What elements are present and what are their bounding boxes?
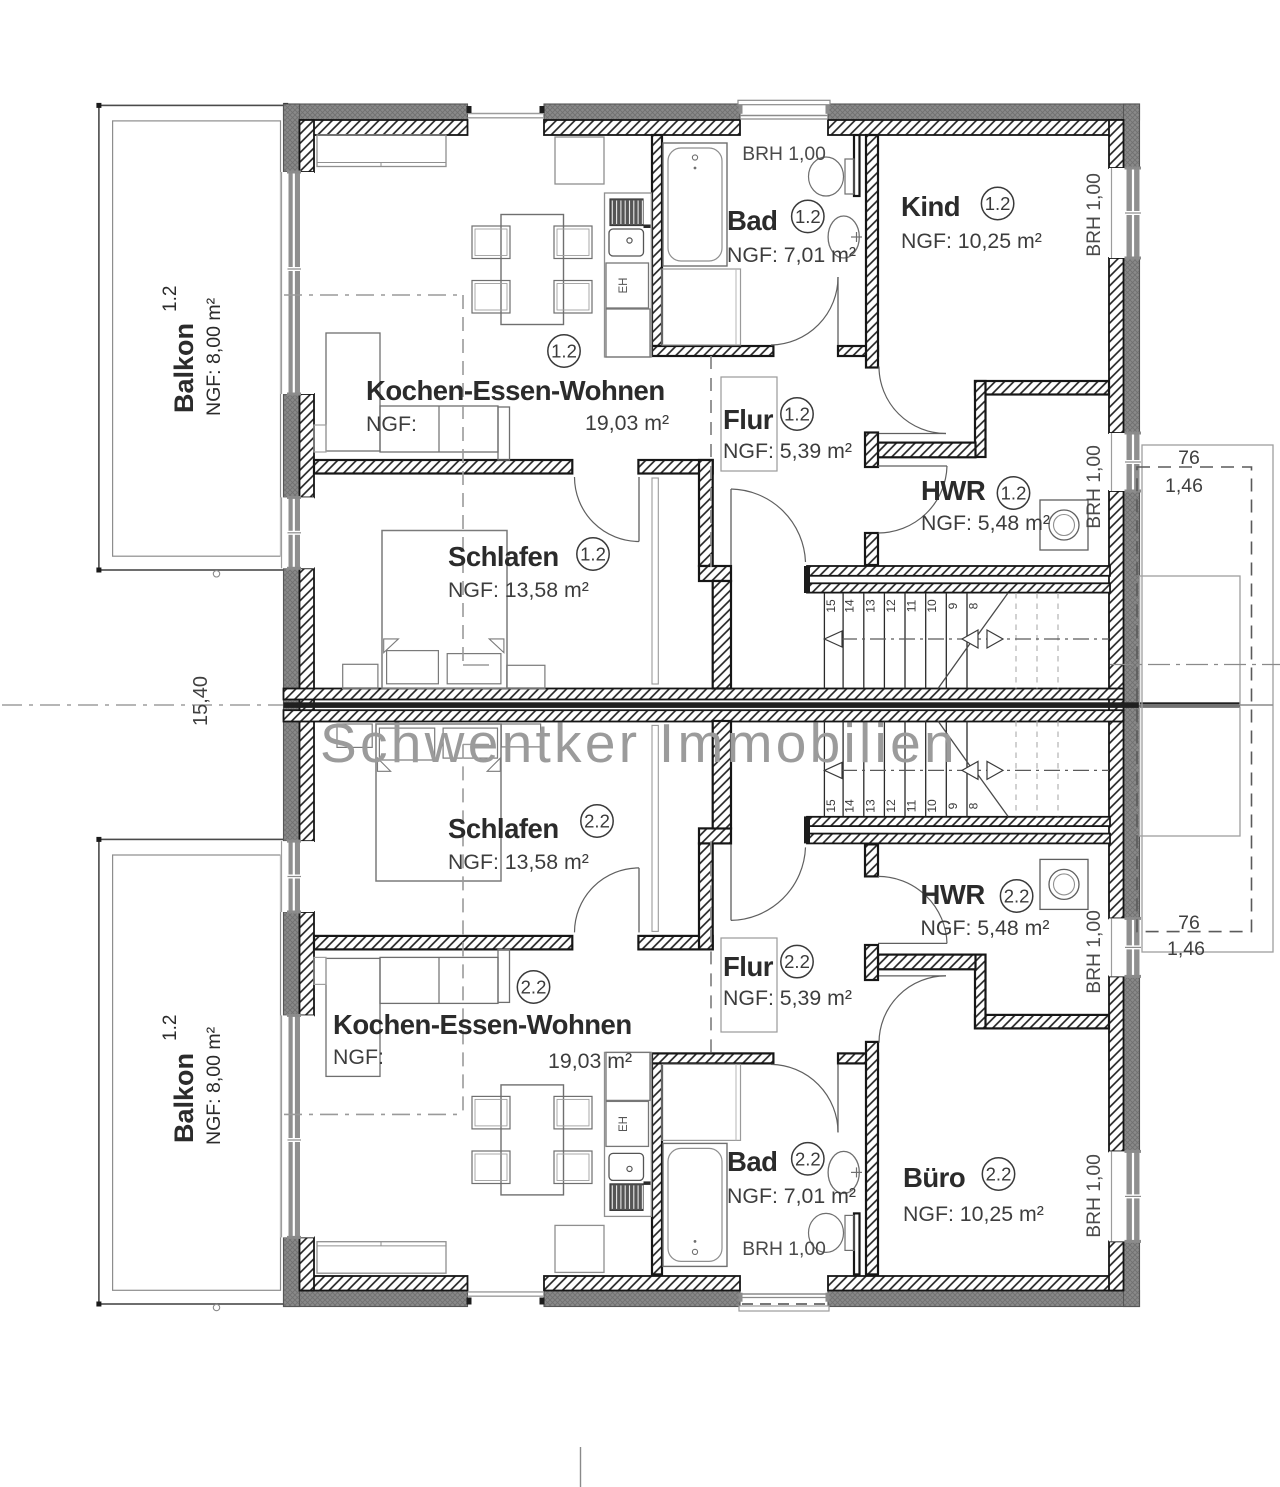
svg-text:BRH 1,00: BRH 1,00 [1084,910,1105,994]
svg-text:BRH 1,00: BRH 1,00 [742,144,826,165]
svg-text:Kind: Kind [901,191,960,222]
svg-text:2.2: 2.2 [584,811,610,832]
svg-text:13: 13 [863,799,877,813]
svg-text:1.2: 1.2 [985,193,1011,214]
svg-text:1.2: 1.2 [160,286,181,312]
svg-text:9: 9 [946,602,960,609]
svg-text:BRH 1,00: BRH 1,00 [1084,445,1105,529]
svg-text:14: 14 [843,799,857,813]
svg-text:NGF: 7,01 m²: NGF: 7,01 m² [727,243,856,267]
svg-text:8: 8 [967,602,981,609]
svg-text:11: 11 [905,599,919,612]
svg-text:1.2: 1.2 [784,404,810,425]
svg-text:8: 8 [967,802,981,809]
svg-text:Schwentker Immobilien: Schwentker Immobilien [320,712,958,774]
svg-text:12: 12 [884,599,898,613]
svg-text:15,40: 15,40 [190,676,212,726]
svg-text:19,03 m²: 19,03 m² [548,1049,632,1073]
svg-text:BRH 1,00: BRH 1,00 [1084,173,1105,257]
svg-text:76: 76 [1178,447,1200,469]
svg-text:NGF: 13,58 m²: NGF: 13,58 m² [448,578,589,602]
svg-text:Bad: Bad [727,1146,777,1177]
svg-text:10: 10 [925,599,939,613]
svg-text:Büro: Büro [903,1162,965,1193]
svg-text:BRH 1,00: BRH 1,00 [1084,1154,1105,1238]
svg-text:10: 10 [925,799,939,813]
svg-text:15: 15 [824,799,838,813]
svg-text:Balkon: Balkon [169,323,199,413]
svg-text:Kochen-Essen-Wohnen: Kochen-Essen-Wohnen [366,375,665,406]
svg-text:1.2: 1.2 [1001,483,1027,504]
svg-text:EH: EH [618,1116,630,1132]
svg-text:Schlafen: Schlafen [448,813,559,844]
svg-text:HWR: HWR [921,475,986,506]
svg-text:1.2: 1.2 [551,341,577,362]
svg-text:NGF: 10,25 m²: NGF: 10,25 m² [901,229,1042,253]
svg-text:Kochen-Essen-Wohnen: Kochen-Essen-Wohnen [333,1009,632,1040]
svg-text:NGF: 13,58 m²: NGF: 13,58 m² [448,850,589,874]
svg-text:19,03 m²: 19,03 m² [585,411,669,435]
svg-text:9: 9 [946,802,960,809]
svg-text:NGF:: NGF: [333,1045,384,1069]
svg-text:NGF: 8,00 m²: NGF: 8,00 m² [203,297,225,416]
svg-text:14: 14 [843,599,857,613]
svg-text:NGF: 5,48 m²: NGF: 5,48 m² [921,916,1050,940]
svg-text:15: 15 [824,599,838,613]
svg-text:EH: EH [618,278,630,294]
svg-text:Balkon: Balkon [169,1053,199,1143]
svg-text:1,46: 1,46 [1165,475,1203,497]
svg-text:13: 13 [863,599,877,613]
svg-text:2.2: 2.2 [986,1164,1012,1185]
svg-text:2.2: 2.2 [1004,886,1030,907]
svg-text:12: 12 [884,799,898,813]
svg-text:2.2: 2.2 [784,951,810,972]
svg-text:NGF: 5,48 m²: NGF: 5,48 m² [921,511,1050,535]
svg-text:Flur: Flur [723,404,774,435]
svg-text:NGF:: NGF: [366,412,417,436]
svg-text:HWR: HWR [921,879,986,910]
svg-text:NGF: 10,25 m²: NGF: 10,25 m² [903,1202,1044,1226]
svg-text:Schlafen: Schlafen [448,541,559,572]
svg-text:2.2: 2.2 [521,977,547,998]
svg-text:1,46: 1,46 [1167,938,1205,960]
svg-text:NGF: 5,39 m²: NGF: 5,39 m² [723,439,852,463]
svg-text:NGF: 7,01 m²: NGF: 7,01 m² [727,1184,856,1208]
svg-text:NGF: 5,39 m²: NGF: 5,39 m² [723,986,852,1010]
svg-text:11: 11 [905,799,919,812]
svg-text:1.2: 1.2 [795,206,821,227]
svg-text:NGF: 8,00 m²: NGF: 8,00 m² [203,1026,225,1145]
svg-text:Flur: Flur [723,951,774,982]
svg-text:2.2: 2.2 [795,1148,821,1169]
svg-text:1.2: 1.2 [160,1015,181,1041]
svg-text:1.2: 1.2 [580,544,606,565]
svg-text:76: 76 [1178,912,1200,934]
svg-text:Bad: Bad [727,205,777,236]
svg-text:BRH 1,00: BRH 1,00 [742,1239,826,1260]
